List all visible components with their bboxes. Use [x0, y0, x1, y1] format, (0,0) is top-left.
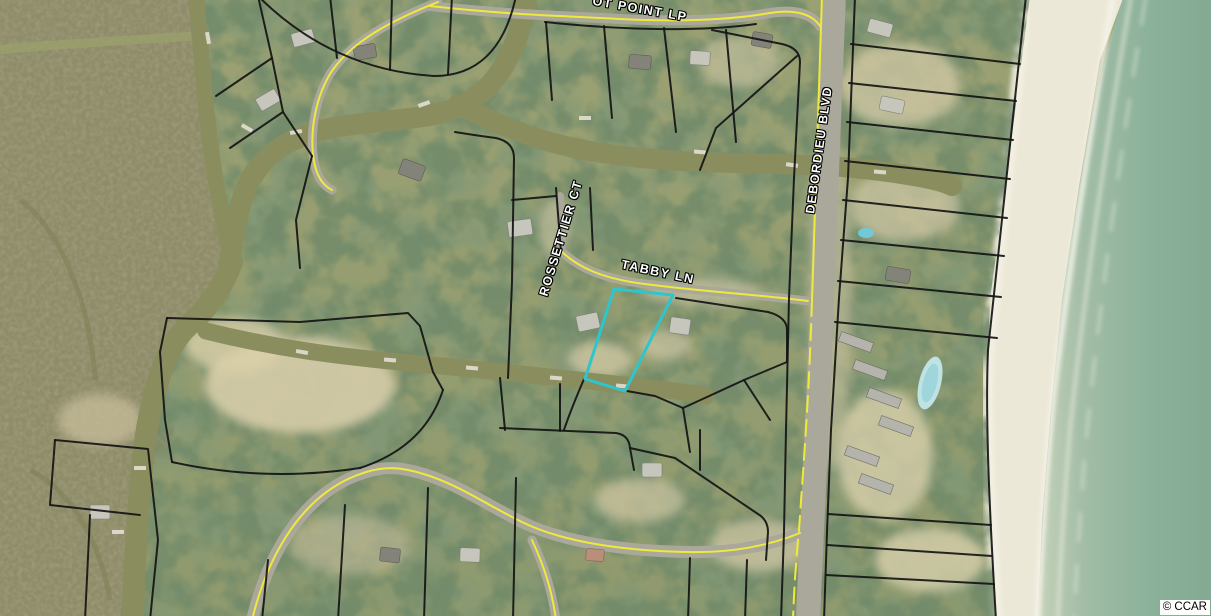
copyright-watermark: © CCAR — [1160, 600, 1210, 615]
aerial-parcel-map[interactable]: OT POINT LP ROSSETTIER CT TABBY LN DEBOR… — [0, 0, 1211, 616]
backyard-pool — [858, 228, 874, 238]
aerial-basemap — [0, 0, 1211, 616]
beach-ocean — [985, 0, 1211, 616]
